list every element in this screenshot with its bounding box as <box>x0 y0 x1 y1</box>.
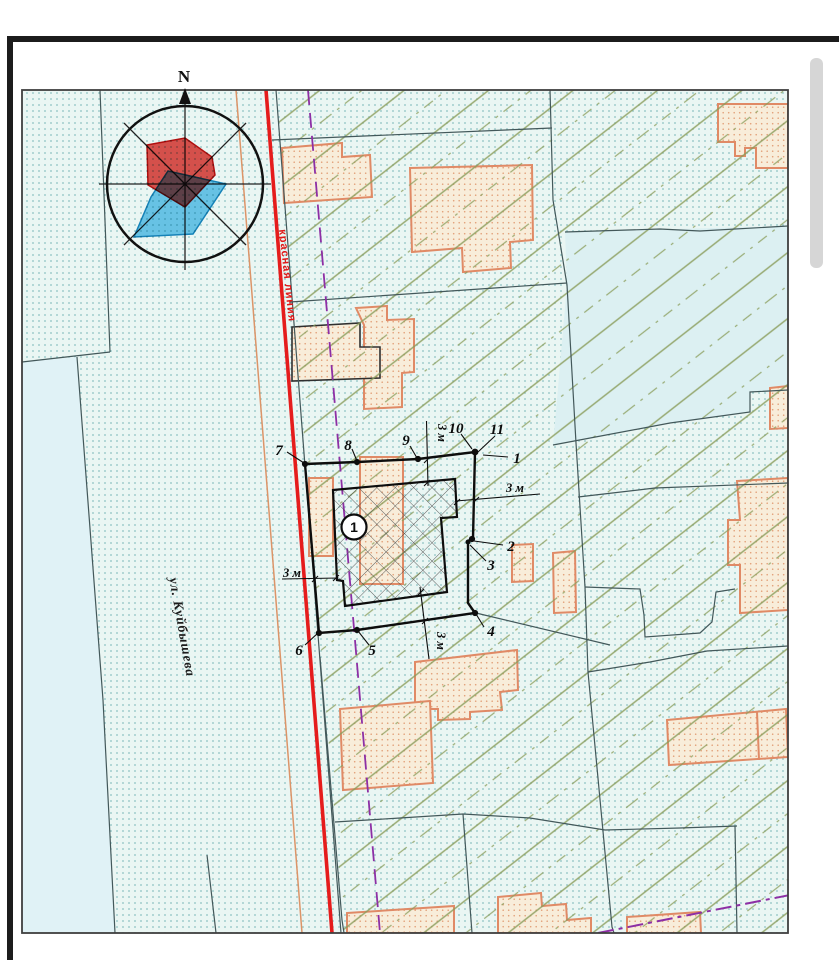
building-number: 1 <box>350 519 358 535</box>
frame-left <box>7 36 13 960</box>
site-plan-screenshot: 1 7 8 9 10 11 1 2 3 4 5 6 3 м 3 м 3 м 3 … <box>0 0 839 960</box>
point-label-3: 3 <box>486 558 495 574</box>
point-label-9: 9 <box>402 433 410 449</box>
point-label-5: 5 <box>368 643 376 659</box>
setback-label-left: 3 м <box>282 566 301 580</box>
point-label-2: 2 <box>506 539 515 555</box>
setback-label-right: 3 м <box>505 481 524 495</box>
map-content: 1 7 8 9 10 11 1 2 3 4 5 6 3 м 3 м 3 м 3 … <box>22 90 790 933</box>
frame-top <box>7 36 839 42</box>
site-plan-svg: 1 7 8 9 10 11 1 2 3 4 5 6 3 м 3 м 3 м 3 … <box>0 0 839 960</box>
point-label-6: 6 <box>295 643 303 659</box>
setback-label-top: 3 м <box>435 423 449 442</box>
proposed-building <box>333 479 457 606</box>
point-label-1: 1 <box>513 451 521 467</box>
setback-label-bottom: 3 м <box>434 631 448 650</box>
point-label-10: 10 <box>449 421 465 437</box>
point-label-11: 11 <box>490 422 504 438</box>
scrollbar-thumb[interactable] <box>810 58 823 268</box>
north-label: N <box>178 67 191 86</box>
point-label-8: 8 <box>344 438 352 454</box>
point-label-4: 4 <box>486 624 495 640</box>
point-label-7: 7 <box>275 443 283 459</box>
